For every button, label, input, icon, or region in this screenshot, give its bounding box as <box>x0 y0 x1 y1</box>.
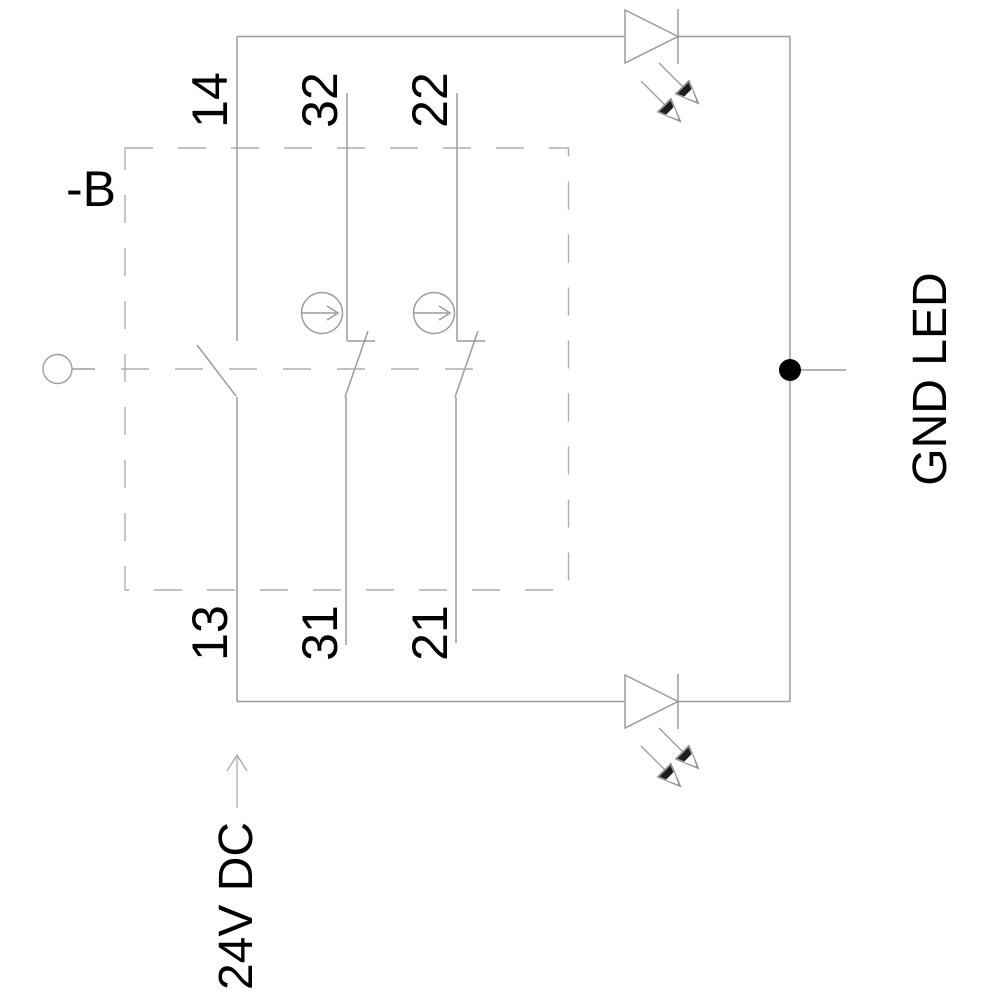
terminal-label-13: 13 <box>182 605 238 661</box>
slow-action-symbol <box>302 293 343 334</box>
supply-direction-arrow-icon <box>227 755 247 808</box>
slow-action-symbol <box>414 293 455 334</box>
diode-triangle <box>625 10 678 63</box>
terminal-label-31: 31 <box>292 605 348 661</box>
actuator-linkage <box>43 355 478 384</box>
junction-dot <box>779 359 801 381</box>
circuit-diagram-page: 14 32 22 13 31 21 -B GND LED 24V DC <box>0 0 1000 1000</box>
led-emission-arrows-icon <box>641 63 698 121</box>
arrow-tail <box>659 63 684 88</box>
led-bottom <box>625 674 698 786</box>
terminal-label-14: 14 <box>182 72 238 128</box>
arrow-tail <box>641 746 666 771</box>
moving-contact <box>197 345 236 396</box>
plunger-circle-icon <box>43 355 72 384</box>
supply-loop-wires <box>237 37 846 702</box>
nc-contact-21-22 <box>414 93 486 643</box>
terminal-label-22: 22 <box>402 72 458 128</box>
terminal-label-21: 21 <box>402 605 458 661</box>
led-emission-arrows-icon <box>641 728 698 786</box>
arrow-tail <box>641 81 666 106</box>
diode-triangle <box>625 675 678 728</box>
supply-voltage-label: 24V DC <box>210 822 263 990</box>
circuit-schematic: 14 32 22 13 31 21 -B GND LED 24V DC <box>0 0 1000 1000</box>
arrow-tail <box>659 728 684 753</box>
terminal-label-32: 32 <box>292 72 348 128</box>
led-top <box>625 9 698 121</box>
gnd-led-label: GND LED <box>904 272 957 485</box>
device-reference-label: -B <box>66 161 116 217</box>
